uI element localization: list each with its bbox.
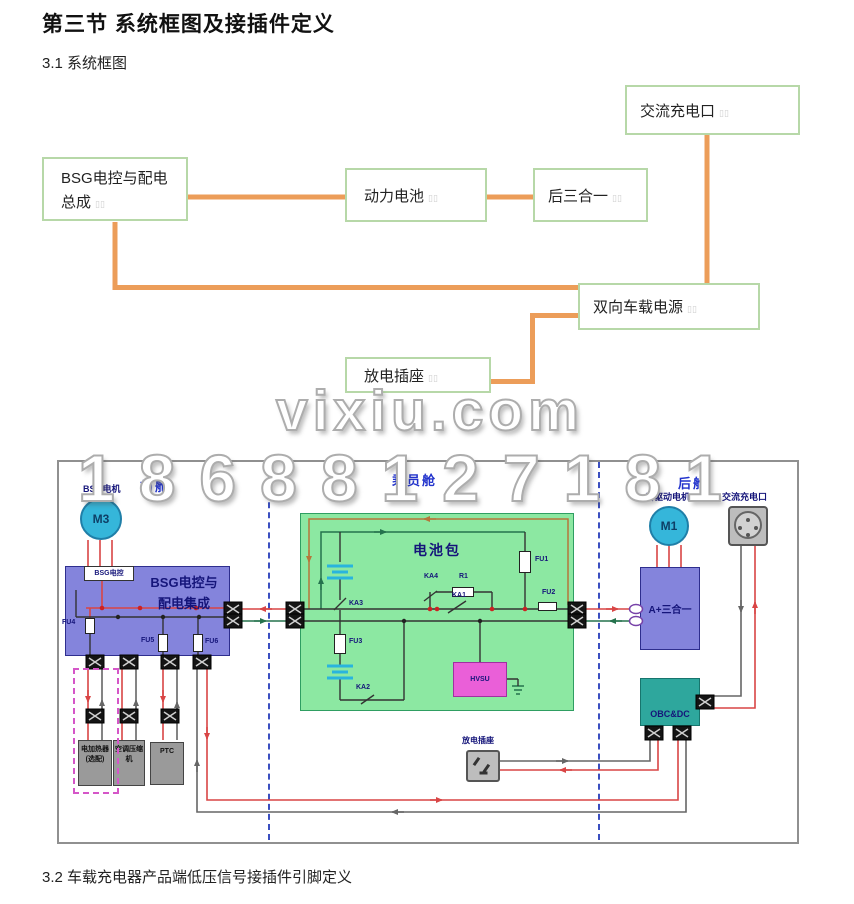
fuse-label-fu6: FU6 — [205, 638, 218, 645]
fuse-fu1 — [519, 551, 531, 573]
bsg-motor-label: BSG电机 — [83, 482, 121, 495]
relay-label-ka4: KA4 — [424, 573, 438, 580]
optional-load-dashed-outline — [73, 668, 119, 794]
discharge-socket-icon — [466, 750, 500, 782]
fuse-fu6 — [193, 634, 203, 652]
rear-motor-label: 后驱动电机 — [645, 490, 690, 503]
flow-box-rear-three-in-one: 后三合一 — [533, 168, 648, 222]
page-title: 第三节 系统框图及接插件定义 — [42, 8, 335, 38]
m1-motor-icon: M1 — [649, 506, 689, 546]
fuse-fu3 — [334, 634, 346, 654]
relay-label-ka3: KA3 — [349, 600, 363, 607]
flow-box-discharge-socket: 放电插座 — [345, 357, 491, 393]
document-page: 第三节 系统框图及接插件定义 3.1 系统框图 3.2 车载充电器产品端低压信号… — [0, 0, 854, 904]
fuse-fu4 — [85, 618, 95, 634]
ac-charge-port-label: 交流充电口 — [722, 490, 767, 503]
flow-box-bsg-assembly: BSG电控与配电总成 — [42, 157, 188, 221]
section-3-2-heading: 3.2 车载充电器产品端低压信号接插件引脚定义 — [42, 866, 352, 887]
obc-dc-box: OBC&DC — [640, 678, 700, 726]
zone-label-cabin: 乘员舱 — [392, 470, 437, 489]
discharge-socket-label: 放电插座 — [462, 735, 494, 746]
fuse-label-fu3: FU3 — [349, 638, 362, 645]
fuse-label-fu1: FU1 — [535, 556, 548, 563]
zone-label-front: 前舱 — [140, 476, 170, 495]
battery-pack-title: 电池包 — [413, 540, 461, 560]
flow-box-bidirectional-obc: 双向车载电源 — [578, 283, 760, 330]
relay-label-ka2: KA2 — [356, 684, 370, 691]
flow-box-ac-charge-port: 交流充电口 — [625, 85, 800, 135]
fuse-label-fu5: FU5 — [141, 637, 154, 644]
relay-label-ka1: KA1 — [452, 592, 466, 599]
bsg-controller-title: BSG电控与 配电集成 — [140, 572, 228, 614]
zone-divider-rear — [598, 462, 600, 840]
section-3-1-heading: 3.1 系统框图 — [42, 52, 127, 73]
a-three-in-one-box: A+三合一 — [640, 567, 700, 650]
ac-charge-port-icon — [728, 506, 768, 546]
flow-box-traction-battery: 动力电池 — [345, 168, 487, 222]
fuse-fu5 — [158, 634, 168, 652]
bsg-ctrl-subbox: BSG电控 — [84, 566, 134, 581]
m3-motor-icon: M3 — [80, 498, 122, 540]
resistor-label-r1: R1 — [459, 573, 468, 580]
fuse-label-fu4: FU4 — [62, 619, 75, 626]
zone-divider-front — [268, 462, 270, 840]
fuse-fu2 — [538, 602, 557, 611]
hvsu-box: HVSU — [453, 662, 507, 697]
fuse-label-fu2: FU2 — [542, 589, 555, 596]
load-ptc-box: PTC — [150, 742, 184, 785]
